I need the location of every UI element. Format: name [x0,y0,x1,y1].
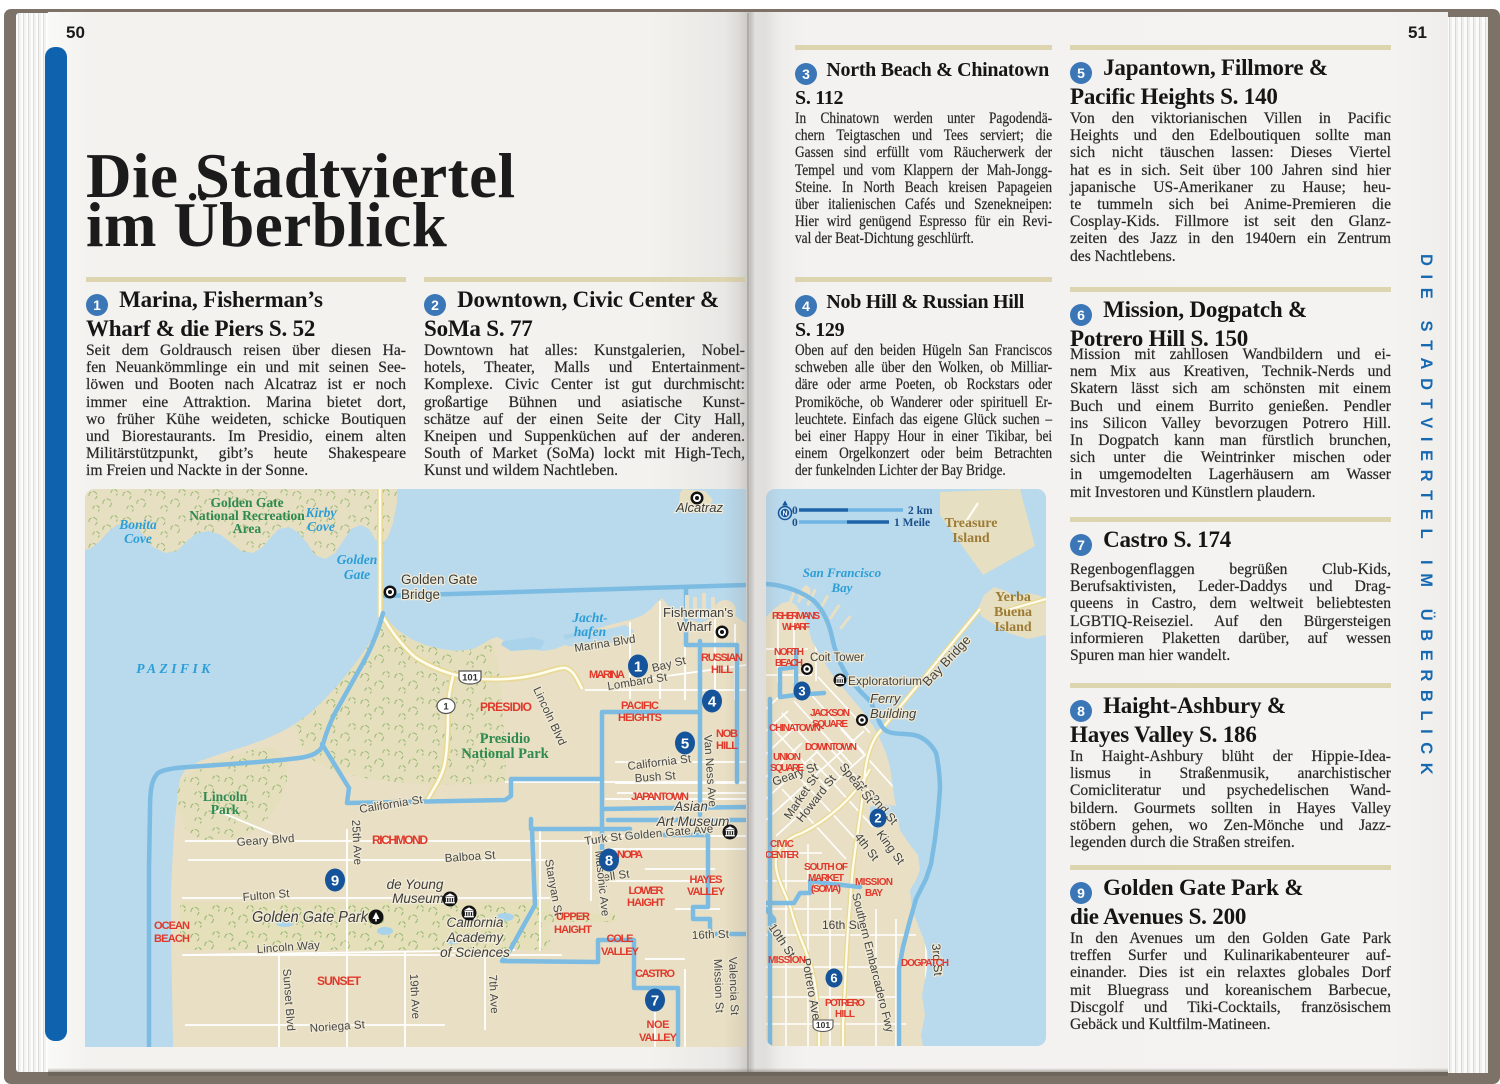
svg-text:VALLEY: VALLEY [687,886,726,898]
svg-text:Kirby: Kirby [305,505,338,520]
svg-text:6: 6 [830,971,837,986]
svg-text:JACKSON: JACKSON [810,708,850,719]
svg-text:VALLEY: VALLEY [639,1032,678,1044]
svg-text:25th Ave: 25th Ave [349,820,363,866]
svg-text:Ferry: Ferry [870,691,902,706]
svg-text:Golden Gate: Golden Gate [401,572,478,587]
svg-text:2: 2 [874,811,881,826]
svg-text:Building: Building [870,706,917,721]
svg-text:101: 101 [816,1020,830,1030]
svg-text:BAY: BAY [865,888,883,899]
svg-text:Park: Park [211,802,240,817]
svg-text:Bay: Bay [831,580,853,595]
svg-text:19th Ave: 19th Ave [407,974,421,1020]
svg-text:HAIGHT: HAIGHT [627,897,665,909]
svg-text:16th St: 16th St [822,918,861,932]
svg-text:(SOMA): (SOMA) [811,884,841,895]
svg-text:NOPA: NOPA [617,849,643,861]
svg-text:Bonita: Bonita [118,517,157,532]
svg-text:1 Meile: 1 Meile [894,517,930,529]
svg-text:Gate: Gate [344,567,370,582]
svg-text:OCEAN: OCEAN [154,920,190,932]
svg-text:Exploratorium: Exploratorium [848,674,922,688]
svg-text:de Young: de Young [387,877,444,892]
svg-text:PAZIFIK: PAZIFIK [136,661,214,676]
svg-text:2 km: 2 km [908,505,933,517]
svg-text:HAIGHT: HAIGHT [554,924,592,936]
svg-text:SUNSET: SUNSET [317,974,362,988]
svg-text:Jacht-: Jacht- [571,610,608,625]
svg-text:HEIGHTS: HEIGHTS [618,712,662,724]
svg-text:National Park: National Park [461,746,549,762]
svg-text:Museum: Museum [392,891,444,906]
svg-text:Cove: Cove [307,519,335,534]
svg-text:COLE: COLE [607,933,634,945]
svg-text:PACIFIC: PACIFIC [621,700,659,712]
svg-text:of Sciences: of Sciences [440,945,510,960]
svg-text:DOGPATCH: DOGPATCH [901,958,949,969]
svg-text:9: 9 [331,873,339,890]
svg-text:MARKET: MARKET [808,873,844,884]
svg-text:Area: Area [233,521,261,536]
svg-text:POTRERO: POTRERO [825,998,865,1009]
svg-text:San Francisco: San Francisco [803,565,882,580]
svg-text:JAPANTOWN: JAPANTOWN [631,791,689,803]
svg-text:HAYES: HAYES [690,874,723,886]
svg-text:0: 0 [792,517,798,529]
svg-text:Island: Island [952,531,990,546]
svg-text:DOWNTOWN: DOWNTOWN [805,742,857,753]
svg-text:1: 1 [443,701,449,712]
svg-text:Cove: Cove [124,531,152,546]
svg-text:NOE: NOE [647,1019,670,1031]
svg-text:Coit Tower: Coit Tower [810,652,864,664]
svg-text:California: California [446,915,504,930]
svg-text:7th Ave: 7th Ave [486,975,500,1014]
svg-text:Golden: Golden [337,552,378,567]
svg-text:CASTRO: CASTRO [635,968,675,980]
svg-text:Treasure: Treasure [945,516,998,531]
svg-text:HILL: HILL [835,1009,855,1020]
svg-text:Academy: Academy [446,930,505,945]
svg-text:7: 7 [651,993,659,1010]
svg-text:WHARF: WHARF [782,622,810,633]
svg-text:BEACH: BEACH [154,933,190,945]
svg-text:Wharf: Wharf [677,619,712,634]
svg-text:UPPER: UPPER [556,911,590,923]
svg-text:3: 3 [798,684,805,699]
svg-text:Art Museum: Art Museum [656,814,730,829]
svg-text:101: 101 [462,672,479,683]
svg-text:MARINA: MARINA [589,669,625,681]
svg-text:MISSION: MISSION [855,877,893,888]
svg-text:Golden Gate Park: Golden Gate Park [252,909,369,926]
svg-text:PRESIDIO: PRESIDIO [480,700,532,714]
svg-text:5: 5 [681,736,689,753]
svg-text:Island: Island [994,620,1032,635]
svg-text:Buena: Buena [994,605,1032,620]
svg-text:0: 0 [792,505,798,517]
svg-text:N: N [782,511,787,518]
svg-text:1: 1 [634,659,642,676]
svg-text:SOUTH OF: SOUTH OF [804,862,848,873]
svg-text:hafen: hafen [574,624,606,639]
svg-text:LOWER: LOWER [629,885,664,897]
svg-text:Yerba: Yerba [995,590,1031,605]
svg-text:Mission St: Mission St [711,959,725,1014]
svg-text:Bridge: Bridge [401,587,440,602]
svg-text:RICHMOND: RICHMOND [372,833,428,847]
svg-text:VALLEY: VALLEY [601,946,640,958]
svg-text:4: 4 [708,694,717,711]
svg-text:8: 8 [605,853,613,870]
svg-text:Presidio: Presidio [480,731,530,747]
